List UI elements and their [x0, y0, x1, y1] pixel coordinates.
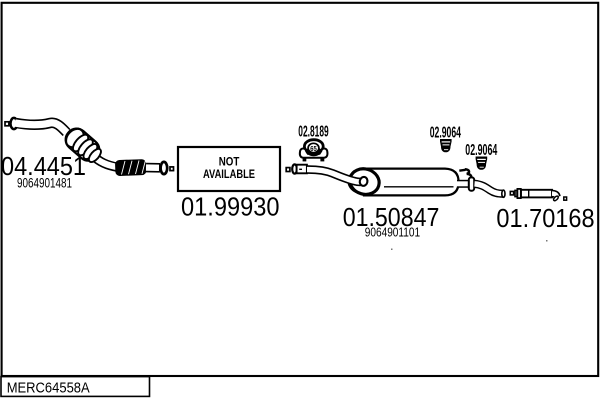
- svg-text:02.9064: 02.9064: [465, 142, 497, 159]
- svg-text:9064901481: 9064901481: [17, 175, 72, 191]
- svg-text:MERC64558A: MERC64558A: [7, 380, 90, 397]
- svg-text:01.99930: 01.99930: [181, 192, 280, 222]
- svg-text:01.70168: 01.70168: [496, 203, 594, 233]
- svg-text:65: 65: [310, 144, 317, 153]
- svg-text:02.8189: 02.8189: [298, 124, 328, 141]
- svg-text:AVAILABLE: AVAILABLE: [203, 167, 255, 181]
- svg-text:9064901101: 9064901101: [365, 225, 421, 240]
